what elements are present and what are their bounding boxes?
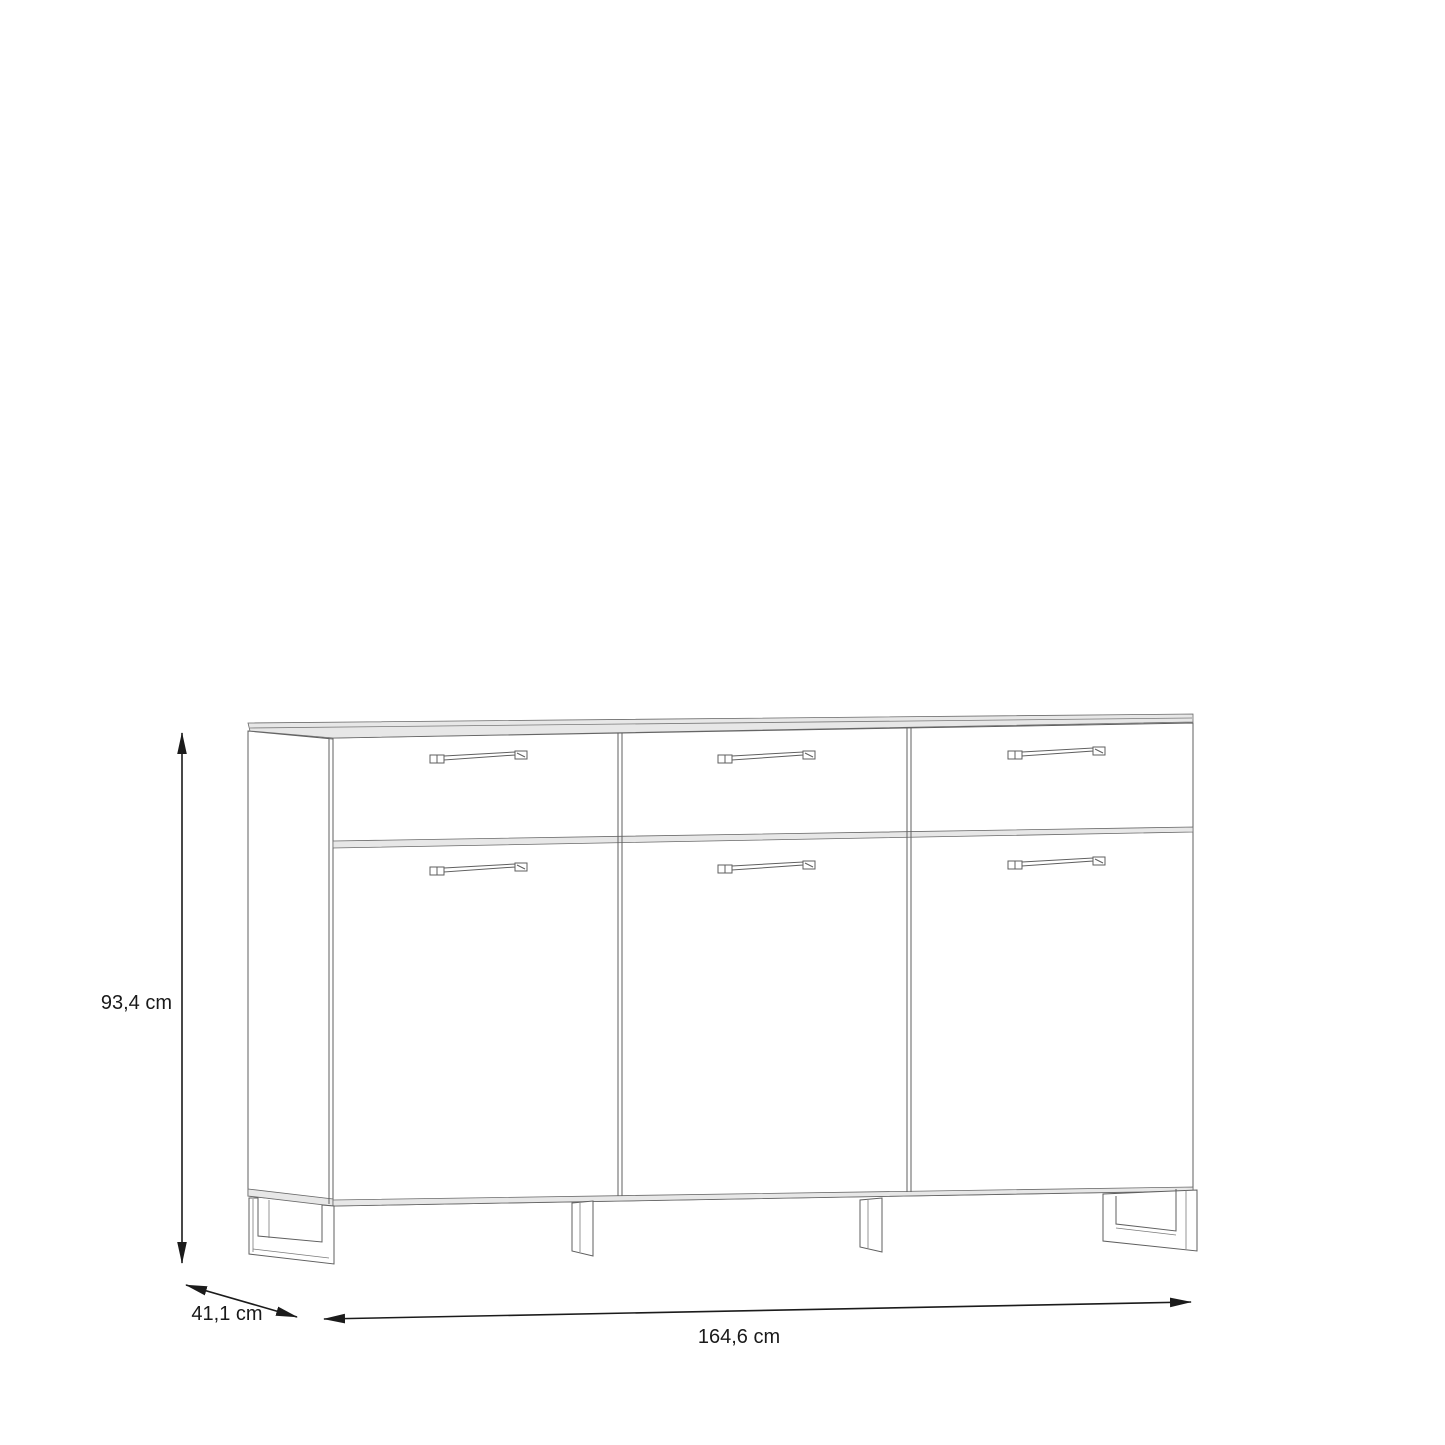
cabinet-front-face — [333, 723, 1193, 1206]
leg-front-left — [249, 1198, 334, 1264]
width-dimension-label: 164,6 cm — [698, 1326, 780, 1348]
depth-dimension: 41,1 cm — [186, 1285, 297, 1325]
depth-dimension-label: 41,1 cm — [191, 1303, 262, 1325]
leg-middle-left — [572, 1201, 593, 1256]
leg-front-right — [1103, 1189, 1197, 1251]
cabinet-side-panel — [248, 731, 333, 1205]
sideboard-dimension-drawing: 93,4 cm 41,1 cm 164,6 cm — [0, 0, 1445, 1445]
cabinet — [248, 714, 1197, 1264]
width-dimension: 164,6 cm — [324, 1302, 1191, 1348]
height-dimension-label: 93,4 cm — [101, 992, 172, 1014]
height-dimension: 93,4 cm — [101, 733, 182, 1263]
diagram-canvas: 93,4 cm 41,1 cm 164,6 cm — [0, 0, 1445, 1445]
leg-middle-right — [860, 1198, 882, 1252]
